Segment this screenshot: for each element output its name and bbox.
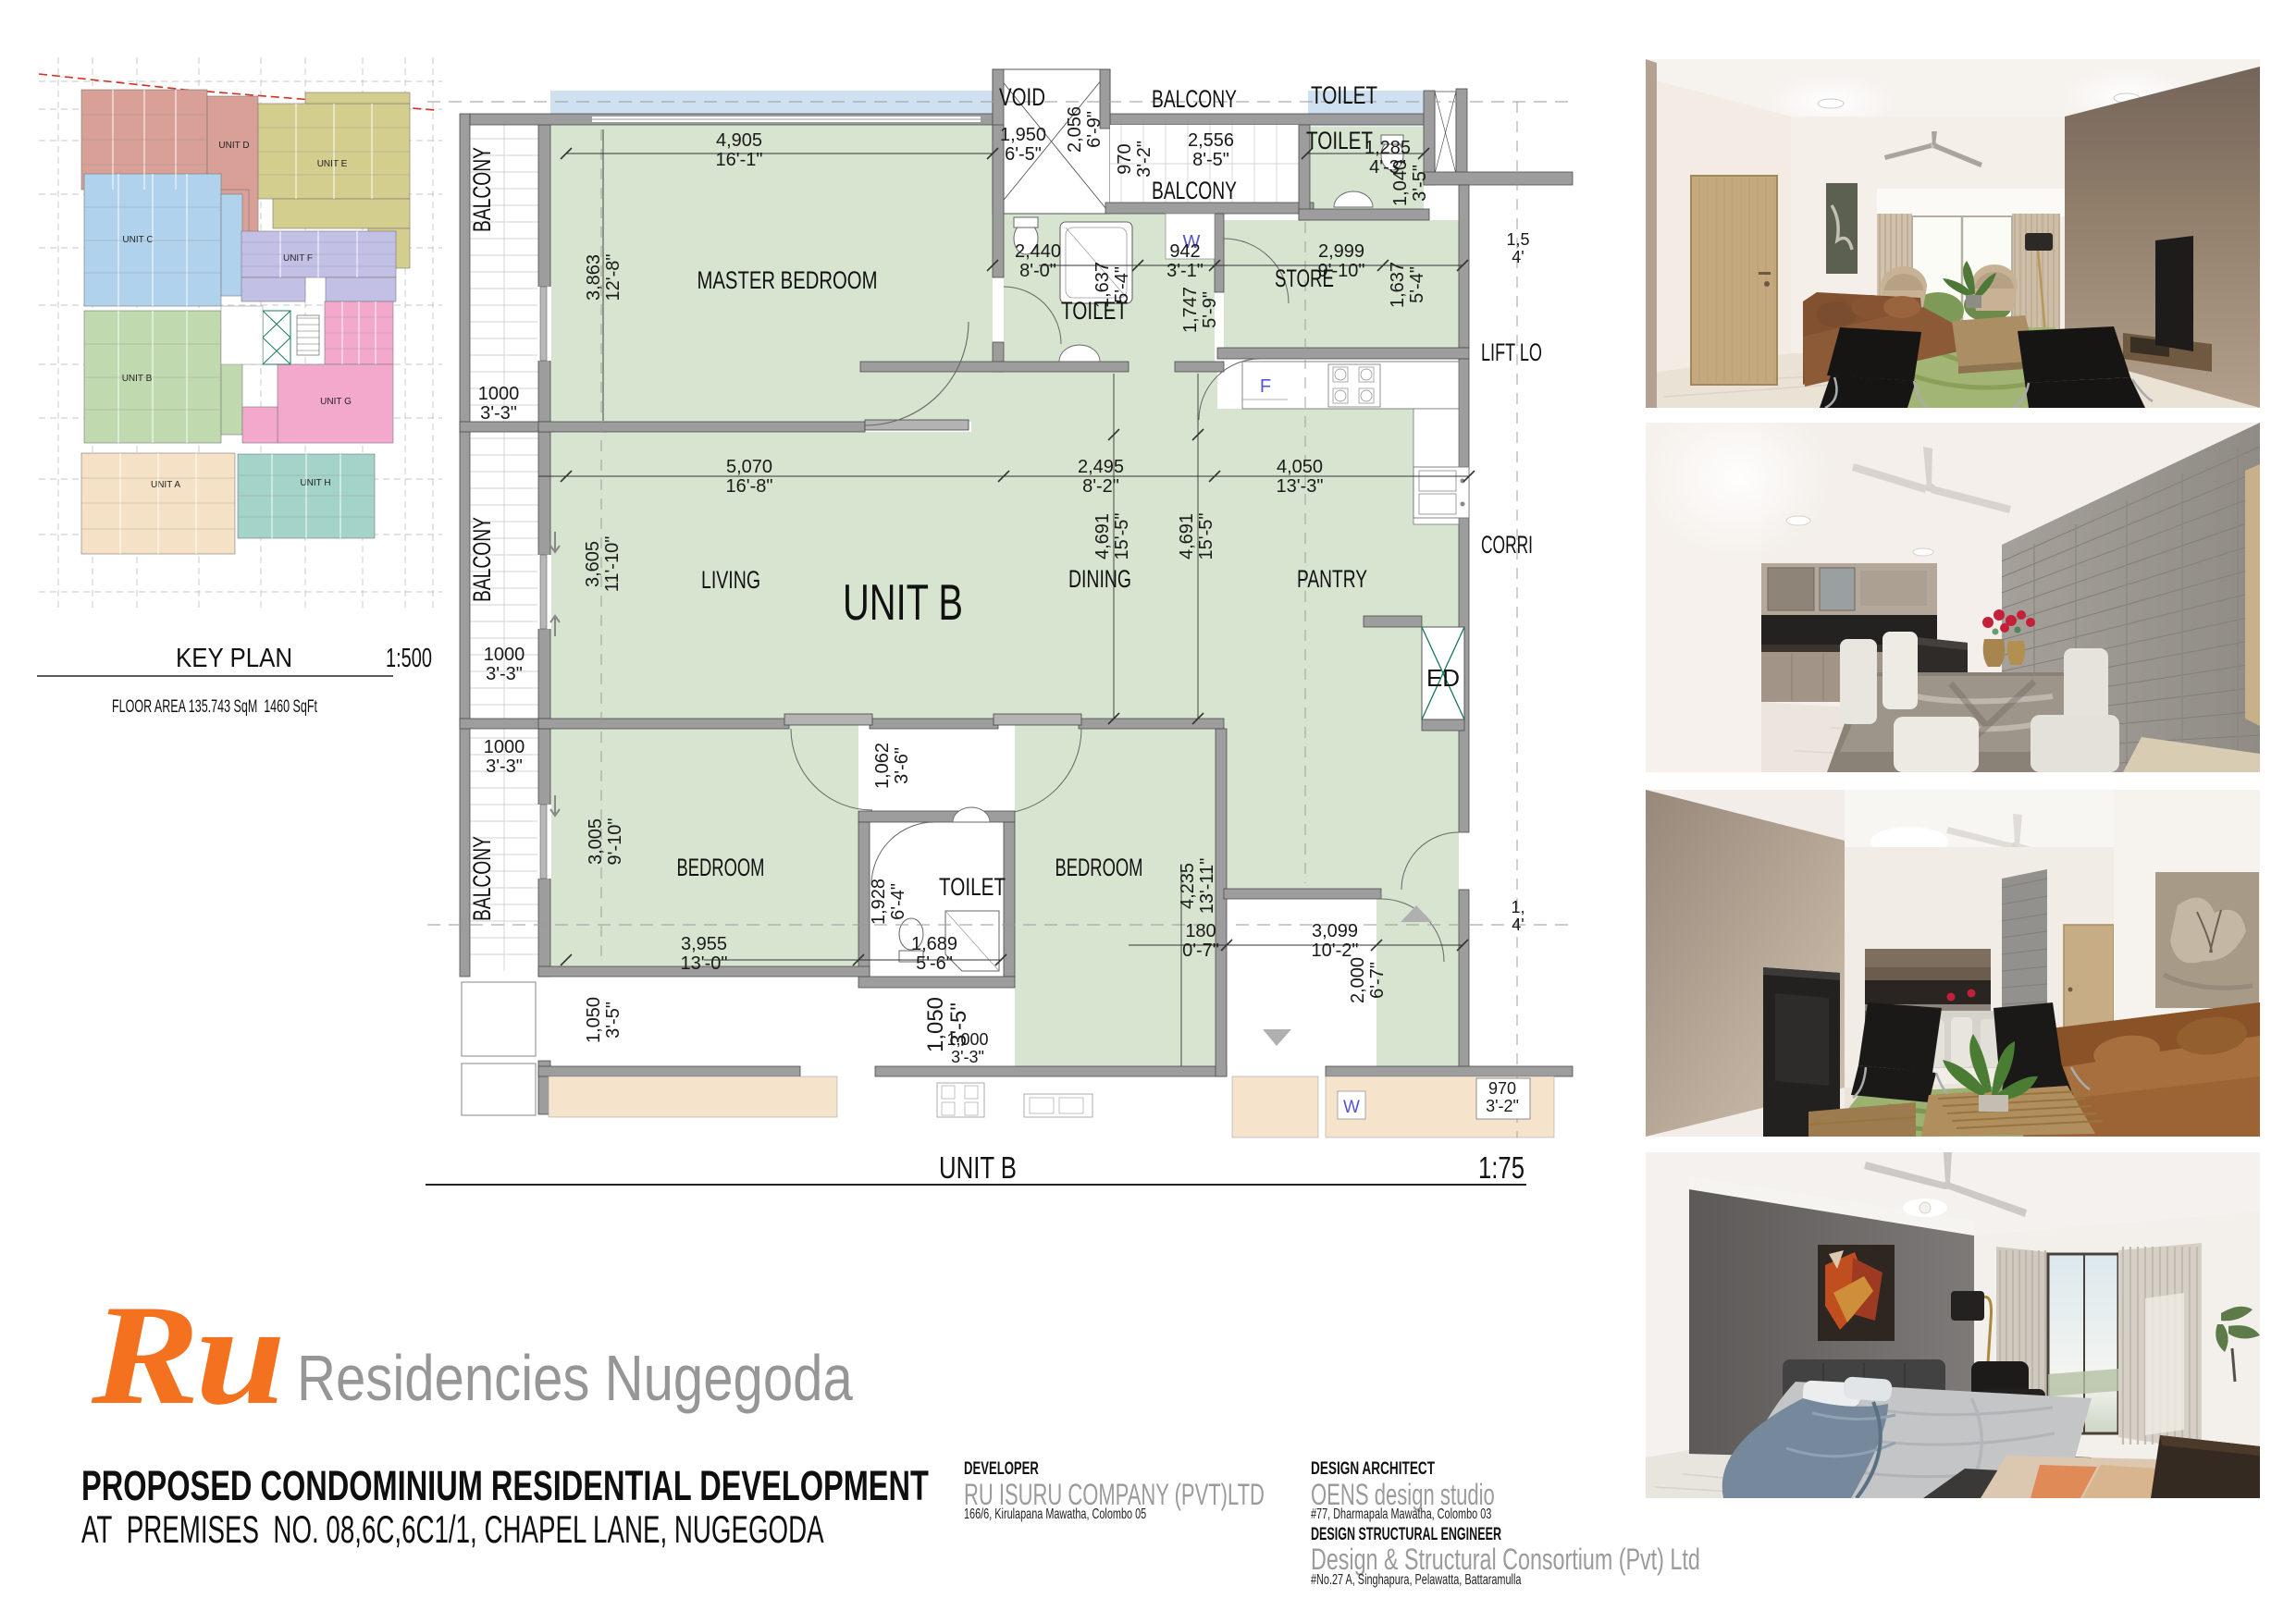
svg-text:6'-9": 6'-9" bbox=[1084, 111, 1105, 148]
svg-text:2,000: 2,000 bbox=[1348, 957, 1368, 1003]
svg-text:1,689: 1,689 bbox=[911, 934, 957, 954]
svg-text:3'-5": 3'-5" bbox=[1410, 165, 1430, 202]
svg-text:4,905: 4,905 bbox=[716, 130, 762, 151]
svg-text:STORE: STORE bbox=[1275, 264, 1334, 292]
svg-text:1,000: 1,000 bbox=[946, 1030, 988, 1049]
svg-text:13'-3": 13'-3" bbox=[1277, 476, 1324, 497]
svg-text:TOILET: TOILET bbox=[1306, 127, 1373, 154]
svg-text:3'-3": 3'-3" bbox=[486, 664, 523, 684]
svg-text:4': 4' bbox=[1512, 248, 1524, 266]
svg-text:970: 970 bbox=[1488, 1079, 1516, 1098]
svg-text:KEY PLAN: KEY PLAN bbox=[176, 644, 292, 673]
svg-text:1000: 1000 bbox=[484, 737, 525, 757]
svg-text:1000: 1000 bbox=[478, 384, 520, 404]
svg-text:1,928: 1,928 bbox=[869, 879, 889, 925]
svg-text:4,691: 4,691 bbox=[1177, 513, 1197, 559]
svg-text:1,040: 1,040 bbox=[1390, 160, 1411, 206]
svg-text:5,070: 5,070 bbox=[726, 457, 772, 477]
svg-text:970: 970 bbox=[1115, 143, 1135, 174]
svg-text:1,637: 1,637 bbox=[1388, 262, 1408, 308]
svg-text:DINING: DINING bbox=[1068, 565, 1131, 593]
svg-text:1,062: 1,062 bbox=[872, 743, 893, 789]
svg-text:PANTRY: PANTRY bbox=[1297, 565, 1367, 593]
svg-text:BALCONY: BALCONY bbox=[1152, 85, 1237, 113]
svg-text:1,5: 1,5 bbox=[1506, 230, 1529, 249]
svg-text:BALCONY: BALCONY bbox=[468, 836, 496, 921]
svg-text:15'-5": 15'-5" bbox=[1112, 513, 1132, 560]
svg-text:180: 180 bbox=[1185, 921, 1216, 941]
svg-text:2,999: 2,999 bbox=[1318, 241, 1364, 262]
svg-text:CORRI: CORRI bbox=[1481, 531, 1533, 559]
svg-text:UNIT H: UNIT H bbox=[300, 478, 330, 488]
svg-text:1,: 1, bbox=[1511, 898, 1524, 916]
svg-text:ED: ED bbox=[1426, 664, 1460, 692]
svg-text:2,495: 2,495 bbox=[1078, 457, 1124, 477]
svg-text:6'-4": 6'-4" bbox=[888, 883, 908, 920]
svg-text:8'-5": 8'-5" bbox=[1192, 150, 1229, 170]
svg-text:6'-5": 6'-5" bbox=[1005, 144, 1042, 165]
svg-text:3,863: 3,863 bbox=[584, 254, 604, 301]
svg-text:8'-0": 8'-0" bbox=[1019, 261, 1056, 281]
svg-text:1:500: 1:500 bbox=[386, 644, 432, 673]
svg-text:11'-10": 11'-10" bbox=[602, 536, 623, 593]
svg-text:VOID: VOID bbox=[999, 83, 1045, 111]
svg-text:3'-2": 3'-2" bbox=[1486, 1097, 1519, 1115]
svg-text:3'-5": 3'-5" bbox=[603, 1002, 623, 1039]
svg-text:2,556: 2,556 bbox=[1188, 130, 1234, 151]
svg-text:4,050: 4,050 bbox=[1277, 457, 1323, 477]
svg-text:4,691: 4,691 bbox=[1092, 513, 1113, 559]
svg-text:13'-11": 13'-11" bbox=[1197, 858, 1217, 915]
svg-text:9'-10": 9'-10" bbox=[605, 818, 625, 866]
svg-text:3'-6": 3'-6" bbox=[892, 747, 912, 784]
svg-text:3'-3": 3'-3" bbox=[486, 756, 523, 777]
svg-text:5'-9": 5'-9" bbox=[1200, 291, 1220, 328]
svg-text:4,235: 4,235 bbox=[1178, 863, 1198, 909]
svg-text:BALCONY: BALCONY bbox=[468, 517, 496, 602]
svg-text:UNIT G: UNIT G bbox=[320, 397, 352, 407]
svg-text:2,056: 2,056 bbox=[1065, 106, 1085, 153]
svg-text:BALCONY: BALCONY bbox=[1152, 177, 1237, 204]
svg-text:16'-8": 16'-8" bbox=[726, 476, 773, 497]
svg-text:5'-6": 5'-6" bbox=[916, 953, 953, 974]
svg-text:0'-7": 0'-7" bbox=[1182, 941, 1219, 961]
svg-text:UNIT B: UNIT B bbox=[843, 573, 963, 631]
svg-text:1,950: 1,950 bbox=[1000, 125, 1046, 145]
svg-text:2,440: 2,440 bbox=[1015, 241, 1061, 262]
svg-text:3'-1": 3'-1" bbox=[1167, 261, 1204, 281]
svg-text:1:75: 1:75 bbox=[1478, 1150, 1524, 1185]
svg-text:LIVING: LIVING bbox=[701, 566, 760, 594]
svg-text:BEDROOM: BEDROOM bbox=[1055, 854, 1143, 881]
svg-text:942: 942 bbox=[1169, 241, 1200, 262]
svg-text:UNIT B: UNIT B bbox=[122, 374, 153, 384]
svg-text:F: F bbox=[1260, 376, 1271, 397]
svg-text:TOILET: TOILET bbox=[939, 873, 1006, 901]
svg-text:TOILET: TOILET bbox=[1061, 297, 1128, 325]
svg-text:UNIT F: UNIT F bbox=[283, 253, 313, 264]
svg-text:3'-3": 3'-3" bbox=[951, 1048, 984, 1066]
svg-text:3,955: 3,955 bbox=[681, 934, 727, 954]
svg-text:6'-7": 6'-7" bbox=[1367, 962, 1388, 999]
svg-text:TOILET: TOILET bbox=[1311, 81, 1377, 109]
svg-text:4': 4' bbox=[1512, 916, 1524, 934]
svg-text:16'-1": 16'-1" bbox=[716, 150, 763, 170]
svg-text:MASTER BEDROOM: MASTER BEDROOM bbox=[697, 266, 878, 294]
svg-text:UNIT A: UNIT A bbox=[151, 480, 180, 490]
svg-text:12'-8": 12'-8" bbox=[603, 254, 623, 301]
svg-text:1,050: 1,050 bbox=[923, 997, 948, 1052]
svg-text:3,005: 3,005 bbox=[586, 818, 606, 865]
svg-text:13'-0": 13'-0" bbox=[681, 953, 728, 974]
svg-text:UNIT C: UNIT C bbox=[122, 235, 153, 245]
svg-text:1,747: 1,747 bbox=[1180, 287, 1201, 333]
svg-text:8'-2": 8'-2" bbox=[1082, 476, 1119, 497]
svg-text:BEDROOM: BEDROOM bbox=[677, 854, 765, 881]
svg-text:1,050: 1,050 bbox=[584, 997, 604, 1043]
svg-text:1000: 1000 bbox=[484, 645, 525, 665]
svg-text:W: W bbox=[1343, 1098, 1360, 1117]
svg-text:LIFT LO: LIFT LO bbox=[1481, 338, 1542, 366]
svg-text:UNIT B: UNIT B bbox=[939, 1150, 1017, 1185]
svg-text:5'-4": 5'-4" bbox=[1407, 266, 1427, 303]
svg-text:UNIT E: UNIT E bbox=[317, 159, 348, 169]
svg-text:UNIT D: UNIT D bbox=[218, 141, 249, 151]
svg-text:BALCONY: BALCONY bbox=[468, 147, 496, 232]
svg-text:FLOOR AREA 135.743 SqM 1460 S: FLOOR AREA 135.743 SqM 1460 SqFt bbox=[112, 697, 317, 717]
svg-text:3,605: 3,605 bbox=[583, 541, 603, 587]
svg-text:15'-5": 15'-5" bbox=[1196, 513, 1216, 560]
svg-text:3,099: 3,099 bbox=[1312, 921, 1358, 941]
svg-text:3'-2": 3'-2" bbox=[1134, 141, 1154, 178]
svg-text:3'-3": 3'-3" bbox=[480, 403, 517, 424]
